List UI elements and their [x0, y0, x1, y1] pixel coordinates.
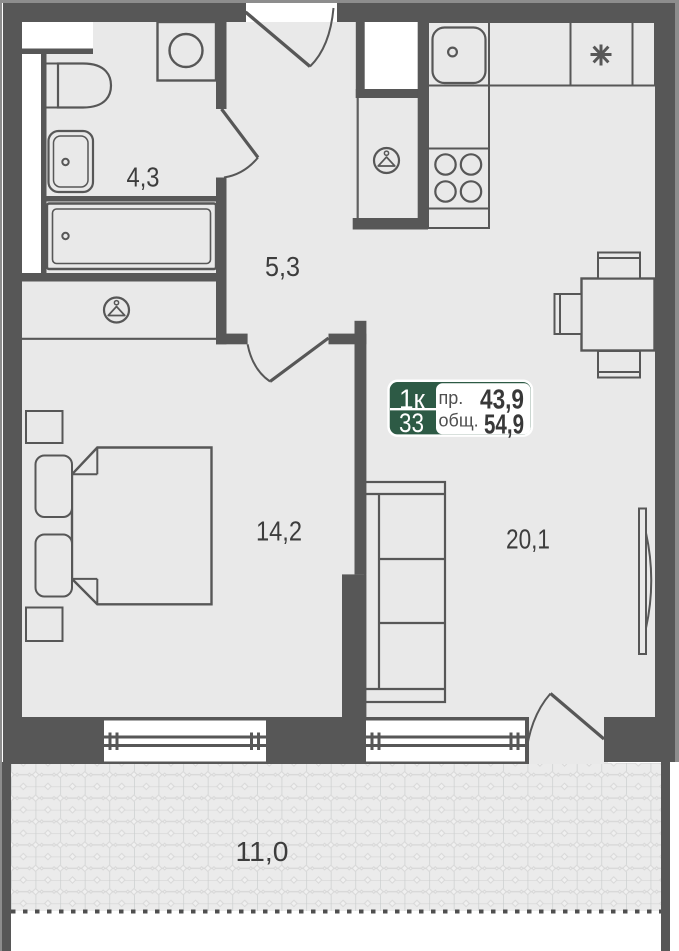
svg-text:5,3: 5,3	[265, 251, 300, 282]
svg-text:общ.: общ.	[439, 411, 479, 431]
svg-text:14,2: 14,2	[256, 516, 302, 547]
svg-text:4,3: 4,3	[127, 162, 160, 193]
svg-text:54,9: 54,9	[484, 409, 524, 440]
svg-text:20,1: 20,1	[506, 524, 550, 555]
svg-text:пр.: пр.	[439, 388, 464, 408]
svg-text:11,0: 11,0	[236, 836, 289, 867]
svg-text:33: 33	[399, 408, 424, 438]
